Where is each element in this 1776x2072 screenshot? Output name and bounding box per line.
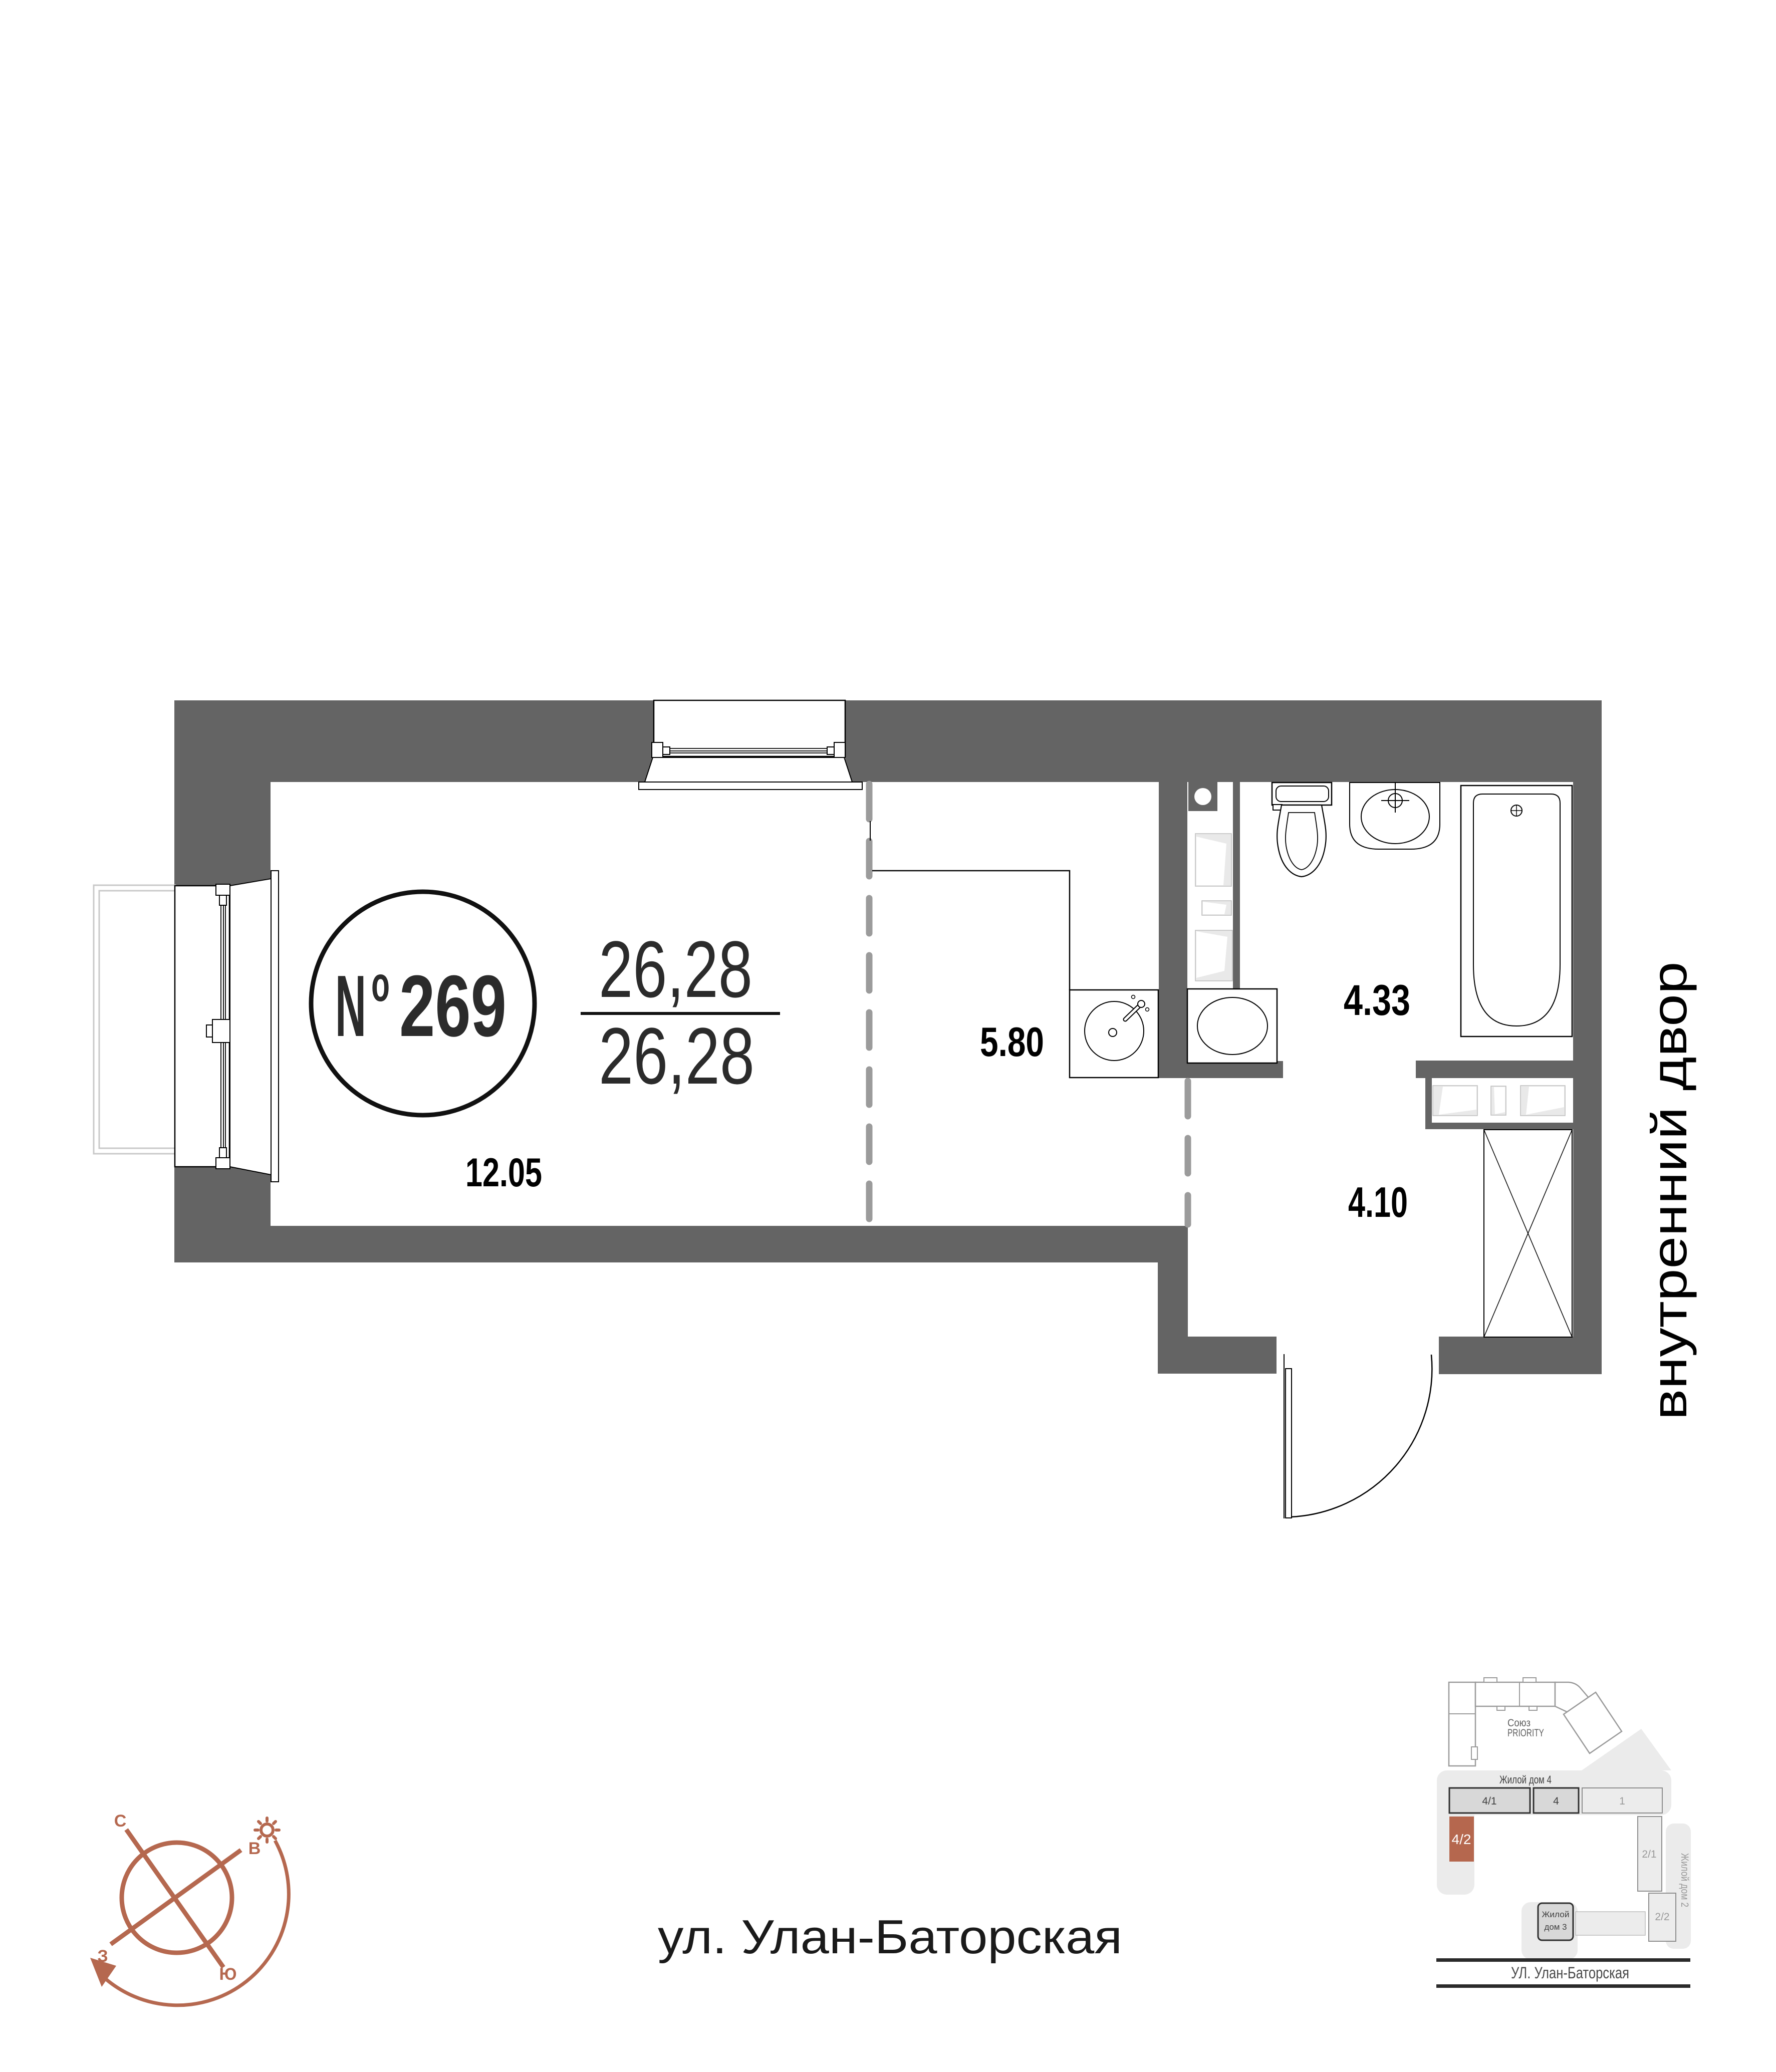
svg-text:УЛ. Улан-Баторская: УЛ. Улан-Баторская [1511,1964,1629,1982]
svg-text:2/2: 2/2 [1655,1911,1669,1923]
svg-text:N: N [335,957,366,1055]
svg-text:ул. Улан-Баторская: ул. Улан-Баторская [658,1910,1122,1964]
svg-text:4.33: 4.33 [1344,976,1410,1024]
svg-text:4: 4 [1553,1795,1559,1807]
svg-text:С: С [114,1811,127,1831]
svg-text:1: 1 [1619,1795,1625,1807]
svg-text:26,28: 26,28 [599,1011,754,1101]
svg-text:4/1: 4/1 [1482,1795,1496,1807]
svg-text:26,28: 26,28 [599,924,752,1014]
svg-text:В: В [248,1839,261,1858]
svg-text:Жилой дом 4: Жилой дом 4 [1499,1773,1552,1786]
svg-text:Ю: Ю [219,1965,236,1984]
svg-text:12.05: 12.05 [465,1150,542,1195]
svg-text:Жилой: Жилой [1542,1910,1570,1919]
svg-text:4/2: 4/2 [1452,1832,1471,1847]
svg-text:PRIORITY: PRIORITY [1507,1727,1544,1739]
svg-text:269: 269 [399,957,506,1055]
svg-text:o: o [371,956,390,1011]
svg-text:2/1: 2/1 [1642,1849,1656,1860]
svg-text:З: З [97,1947,108,1966]
svg-text:Жилой дом 2: Жилой дом 2 [1679,1853,1690,1907]
svg-text:внутренний двор: внутренний двор [1642,962,1697,1420]
svg-text:5.80: 5.80 [980,1018,1044,1065]
svg-text:дом 3: дом 3 [1545,1922,1567,1932]
svg-text:4.10: 4.10 [1348,1179,1408,1226]
